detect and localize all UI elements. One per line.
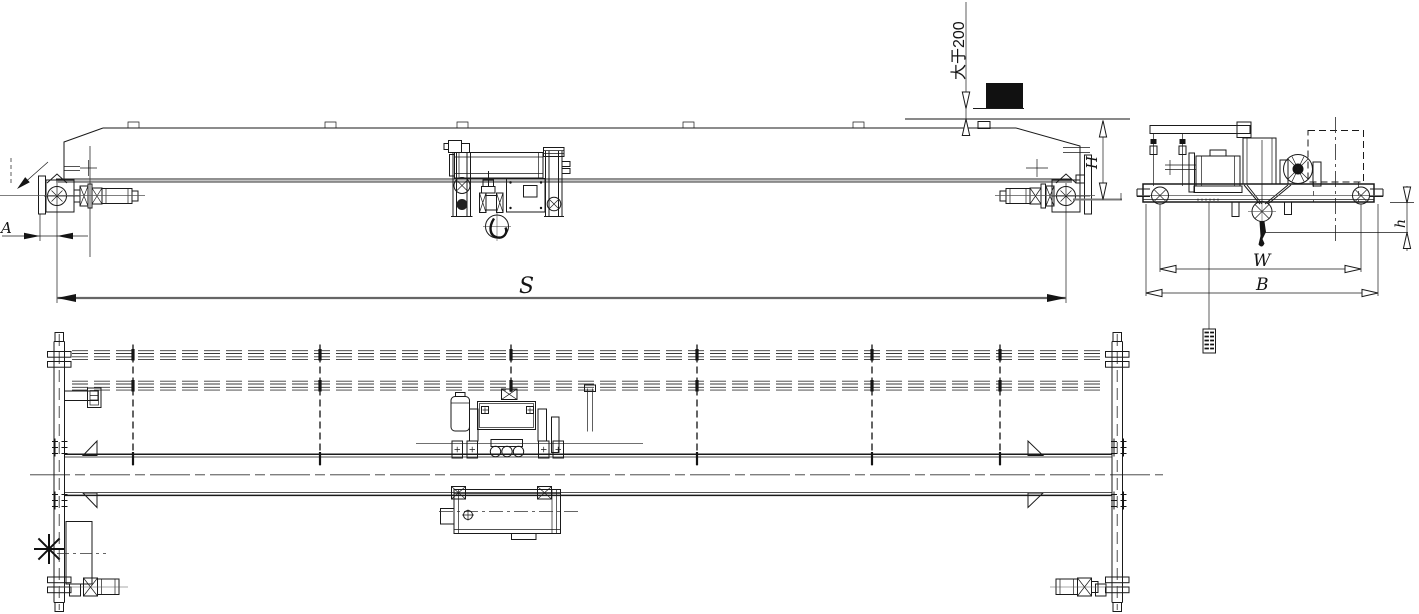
front-elevation-view: 大于200 <box>0 2 1130 303</box>
hook-assembly-end <box>1248 198 1276 247</box>
hook-end <box>1259 222 1267 247</box>
festoon-rails <box>72 351 1104 390</box>
plan-view <box>30 333 1163 612</box>
wheelbase-label: W <box>1253 251 1272 271</box>
clearance-dimension: 大于200 <box>950 2 970 136</box>
festoon-cross-arm <box>1150 126 1250 134</box>
control-cabinet-phantom <box>1308 117 1364 242</box>
electric-hoist-front <box>444 141 570 242</box>
clearance-label: 大于200 <box>950 21 968 80</box>
width-label: B <box>1255 275 1269 295</box>
span-dimension: S <box>57 210 1066 303</box>
rail-clip <box>978 122 990 129</box>
end-carriage <box>1137 140 1383 217</box>
girder-plan <box>30 441 1163 508</box>
runway-and-buffer <box>905 83 1130 129</box>
festoon-hangers <box>131 345 1001 467</box>
gear-unit-end <box>1280 155 1321 187</box>
girder-front <box>56 122 1080 257</box>
travel-drive-right <box>1050 578 1118 596</box>
height-dimension: H <box>1083 121 1107 200</box>
festoon-arm <box>65 388 102 408</box>
buffer-stop <box>986 83 1023 108</box>
approach-label: A <box>0 219 12 237</box>
bolt-group <box>1111 439 1127 510</box>
hoist-motor-end <box>1194 150 1242 193</box>
height-label: H <box>1083 155 1101 170</box>
section-star-mark <box>34 534 64 564</box>
rope-guide <box>1244 185 1291 204</box>
drum-frame-end <box>1243 138 1276 184</box>
end-view: h W B <box>1137 117 1414 353</box>
travel-drive-left <box>57 522 128 597</box>
pendant-control <box>1203 202 1216 353</box>
hoist-body-plan <box>439 487 579 540</box>
technical-drawing-sheet: 大于200 <box>0 0 1419 614</box>
trolley-wheel-front <box>457 199 468 210</box>
end-truck-left-plan <box>34 333 128 612</box>
span-label: S <box>519 274 534 299</box>
hook-front <box>491 219 507 238</box>
crane-drawing: 大于200 <box>0 0 1419 614</box>
end-truck-left-front <box>0 160 145 214</box>
hook-height-label: h <box>1393 219 1409 228</box>
hoist-trolley-plan <box>416 385 643 458</box>
end-truck-right-plan <box>1050 333 1129 612</box>
